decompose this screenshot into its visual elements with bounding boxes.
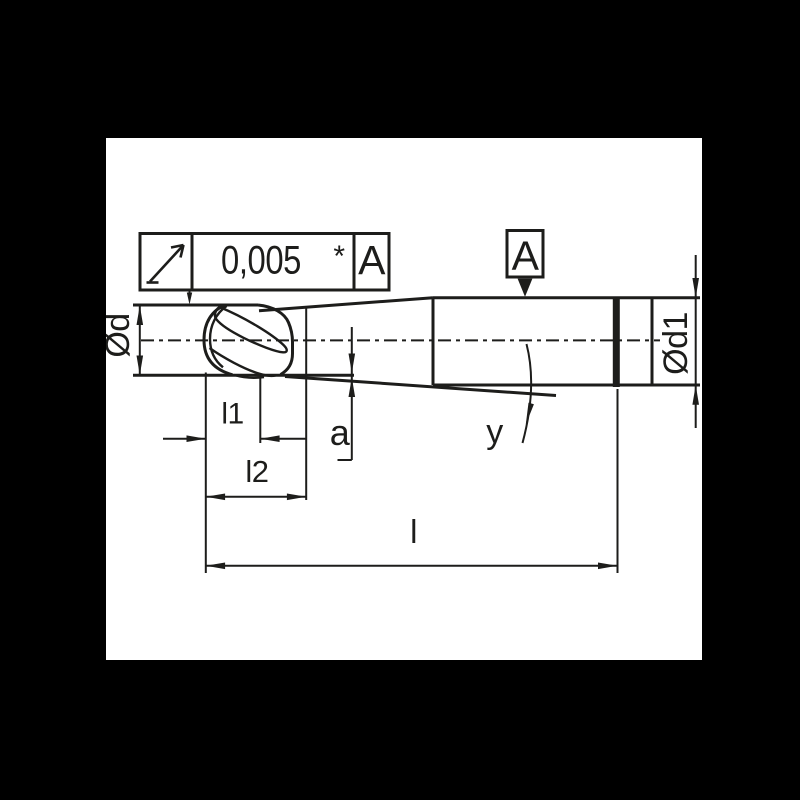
arrowhead	[598, 563, 617, 570]
arrowhead	[526, 403, 534, 425]
fcf-note-asterisk: *	[333, 240, 345, 273]
screenshot-root: { "colors": { "background": "#000000", "…	[0, 0, 800, 800]
fcf-tolerance-value: 0,005	[221, 239, 301, 283]
feature-control-frame: 0,005 * A	[140, 234, 389, 305]
lower-cutting-edge	[210, 348, 276, 376]
dim-l-label: l	[410, 513, 417, 550]
dim-l2: l2	[206, 454, 306, 500]
dim-d-label: Ød	[106, 313, 137, 357]
dim-d1-label: Ød1	[657, 312, 695, 375]
datum-triangle-icon	[518, 279, 533, 297]
technical-drawing: 0,005 * A A Ød Ød1 l1	[106, 138, 702, 660]
dim-l1-label: l1	[221, 398, 243, 431]
arrowhead	[187, 435, 206, 442]
dim-a-label: a	[330, 412, 351, 453]
taper-top-line	[259, 298, 433, 311]
dim-angle-label: y	[486, 413, 503, 451]
dim-d1: Ød1	[657, 255, 699, 428]
fcf-datum-letter: A	[358, 237, 386, 283]
datum-flag-label: A	[512, 233, 540, 279]
datum-flag: A	[507, 231, 543, 297]
arrowhead	[137, 306, 144, 326]
fcf-leader-arrowhead	[187, 293, 192, 305]
arrowhead	[137, 356, 144, 376]
dim-d: Ød	[106, 306, 143, 376]
dim-l: l	[206, 513, 618, 569]
arrowhead	[206, 494, 225, 501]
dim-a: a	[330, 327, 355, 460]
drawing-canvas: 0,005 * A A Ød Ød1 l1	[106, 138, 702, 660]
dim-l2-label: l2	[245, 454, 268, 489]
arrowhead	[260, 435, 279, 442]
arrowhead	[287, 494, 306, 501]
flute-detail	[210, 306, 287, 378]
upper-cutting-edge	[215, 307, 287, 352]
arrowhead	[692, 385, 699, 405]
dim-angle: y	[486, 344, 534, 451]
arrowhead	[349, 354, 356, 374]
arrowhead	[692, 278, 699, 298]
circular-runout-icon	[147, 245, 184, 283]
dim-l1: l1	[163, 398, 306, 443]
arrowhead	[206, 563, 225, 570]
